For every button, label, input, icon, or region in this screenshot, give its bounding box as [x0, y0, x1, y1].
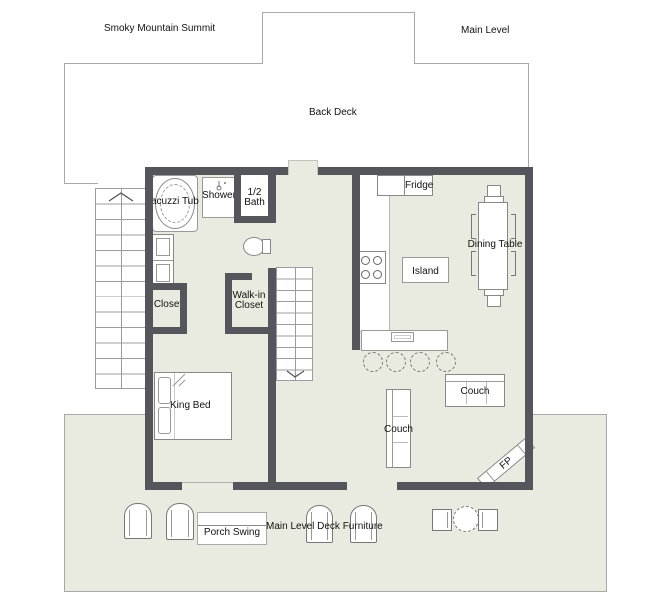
porch-swing: Porch Swing — [197, 512, 267, 545]
jacuzzi-label: Jacuzzi Tub — [146, 196, 199, 207]
vanity-cabinet — [156, 238, 170, 256]
stair-divider — [295, 268, 296, 380]
wall-closet-bottom — [145, 327, 187, 334]
deck-furniture-label: Main Level Deck Furniture — [266, 521, 383, 532]
vanity-divider — [153, 260, 173, 261]
burner — [373, 256, 382, 265]
island-label-box: Island — [402, 257, 449, 283]
back-deck — [64, 63, 529, 167]
stair-divider — [121, 189, 122, 388]
plan-title: Smoky Mountain Summit — [104, 23, 215, 34]
chair-rails — [171, 510, 189, 537]
dining-chair — [471, 214, 476, 239]
burner — [361, 256, 370, 265]
toilet-tank — [262, 239, 271, 254]
patio-chair — [478, 509, 498, 531]
chair-back-line — [447, 512, 448, 528]
door-opening-line — [182, 482, 233, 483]
wall-bottom-1 — [145, 482, 182, 490]
wall-walkin-bottom — [225, 327, 276, 334]
king-bed-label: King Bed — [170, 400, 211, 411]
sink-basin — [394, 335, 411, 339]
up-arrow-icon — [102, 190, 140, 203]
wall-walkin-left — [225, 273, 232, 334]
burner — [373, 270, 382, 279]
vanity — [152, 234, 174, 286]
dining-table-label: Dining Table — [462, 239, 528, 250]
stove — [357, 251, 386, 284]
fridge-label: Fridge — [405, 180, 433, 191]
wall-top-right — [318, 167, 533, 175]
porch-chair — [166, 503, 194, 540]
back-deck-left-edge — [64, 167, 98, 184]
floor-plan: Back Deck Smoky Mountain Summit Main Lev… — [0, 0, 664, 600]
wall-bottom-3 — [397, 482, 533, 490]
shower-label: Shower — [202, 190, 236, 201]
kitchen-sink — [391, 332, 414, 342]
burner — [361, 270, 370, 279]
porch-chair — [124, 503, 152, 539]
interior-stairs — [276, 267, 313, 381]
couch-label: Couch — [371, 424, 426, 435]
back-deck-label: Back Deck — [309, 107, 357, 118]
dining-chair — [487, 295, 501, 307]
dining-chair — [511, 251, 516, 276]
wall-suite-divider-lower — [268, 268, 276, 482]
half-bath-label-2: Bath — [241, 197, 268, 208]
island-counter — [361, 330, 448, 351]
bar-stool — [386, 352, 406, 372]
wall-suite-divider-upper — [268, 175, 276, 223]
dining-chair — [511, 214, 516, 239]
wall-kitchen — [352, 175, 360, 350]
bar-stool — [436, 352, 456, 372]
back-deck-notch — [262, 12, 415, 64]
swing-seat-line — [198, 525, 266, 526]
patio-chair — [432, 509, 452, 531]
island-label: Island — [403, 266, 448, 277]
patio-table — [453, 506, 479, 532]
dining-chair — [471, 251, 476, 276]
bed-fold-icon — [171, 373, 187, 388]
wall-halfbath-left — [234, 175, 241, 216]
chair-back-line — [482, 512, 483, 528]
porch-swing-label: Porch Swing — [198, 527, 266, 538]
couch-cushion-line — [393, 416, 408, 417]
wall-bottom-2 — [233, 482, 347, 490]
couch-label: Couch — [445, 386, 505, 397]
level-label: Main Level — [461, 25, 509, 36]
couch-cushion-line — [393, 442, 408, 443]
wall-right — [525, 167, 533, 490]
down-arrow-icon — [282, 369, 309, 379]
walkin-closet-label-2: Closet — [226, 300, 272, 311]
exterior-stairs — [95, 188, 146, 389]
bar-stool — [410, 352, 430, 372]
vanity-cabinet — [156, 264, 170, 282]
wall-top-left — [145, 167, 288, 175]
chair-rails — [129, 510, 147, 536]
bed-pillow — [158, 407, 171, 434]
bar-stool — [363, 352, 383, 372]
back-door-threshold — [288, 160, 318, 175]
couch-back-line — [446, 381, 504, 382]
